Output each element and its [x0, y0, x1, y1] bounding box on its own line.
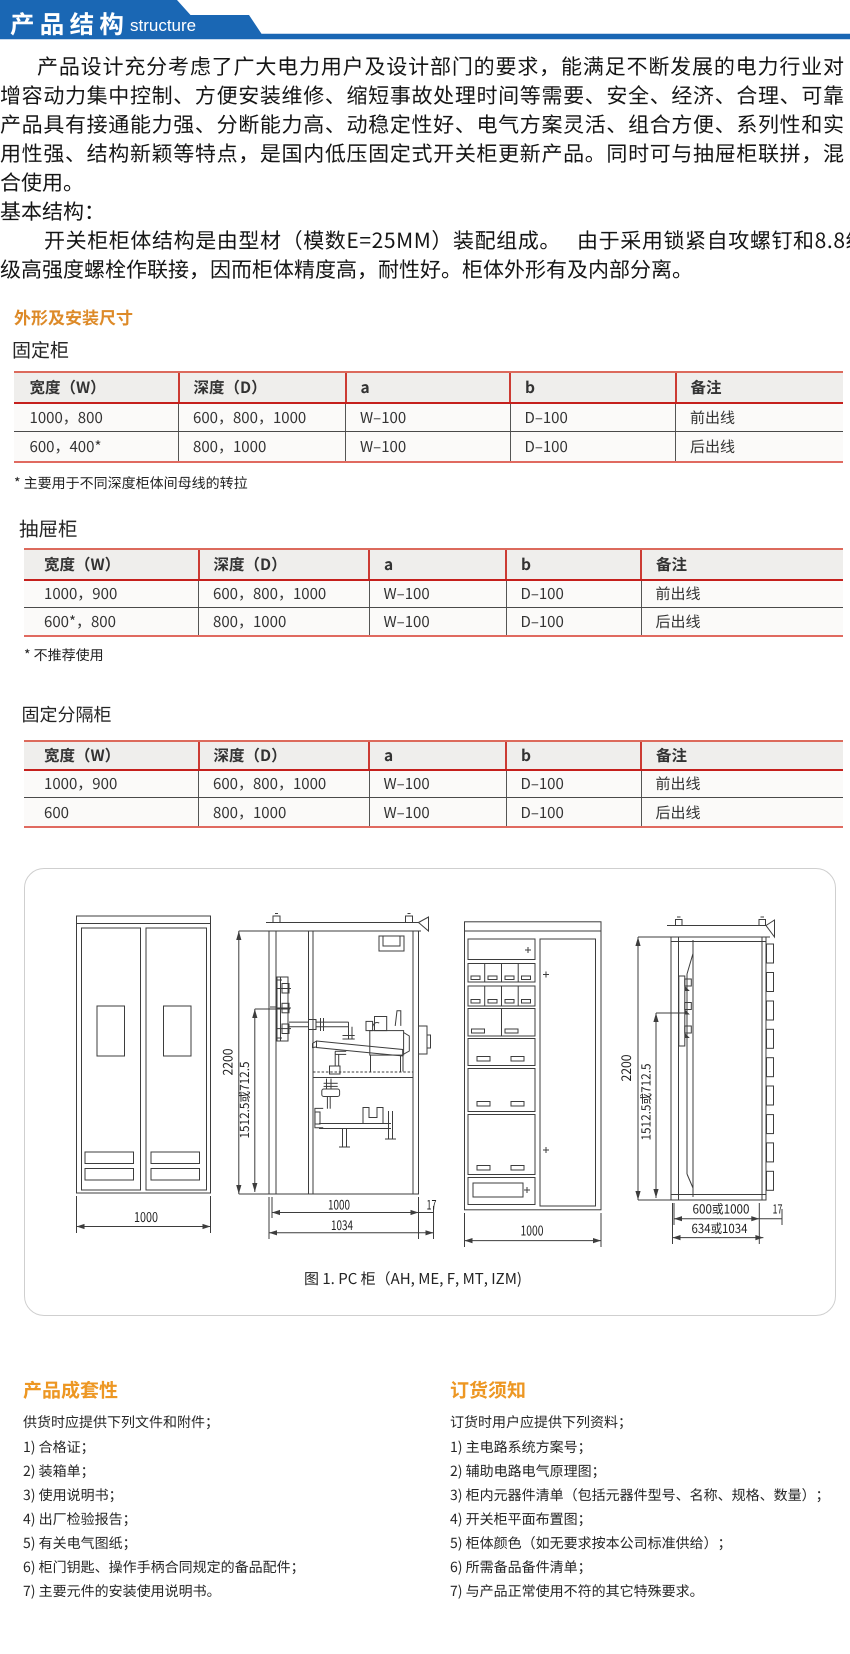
svg-text:2200: 2200	[616, 1055, 635, 1082]
svg-text:634或1034: 634或1034	[692, 1218, 748, 1237]
svg-text:1000: 1000	[134, 1206, 158, 1226]
svg-text:1034: 1034	[331, 1215, 353, 1234]
svg-text:600或1000: 600或1000	[693, 1199, 750, 1218]
svg-text:17: 17	[427, 1195, 437, 1214]
svg-text:17: 17	[773, 1199, 783, 1218]
svg-text:1000: 1000	[328, 1195, 350, 1214]
svg-text:1512.5或712.5: 1512.5或712.5	[636, 1063, 655, 1140]
svg-text:1512.5或712.5: 1512.5或712.5	[234, 1061, 253, 1138]
svg-text:1000: 1000	[521, 1220, 544, 1240]
